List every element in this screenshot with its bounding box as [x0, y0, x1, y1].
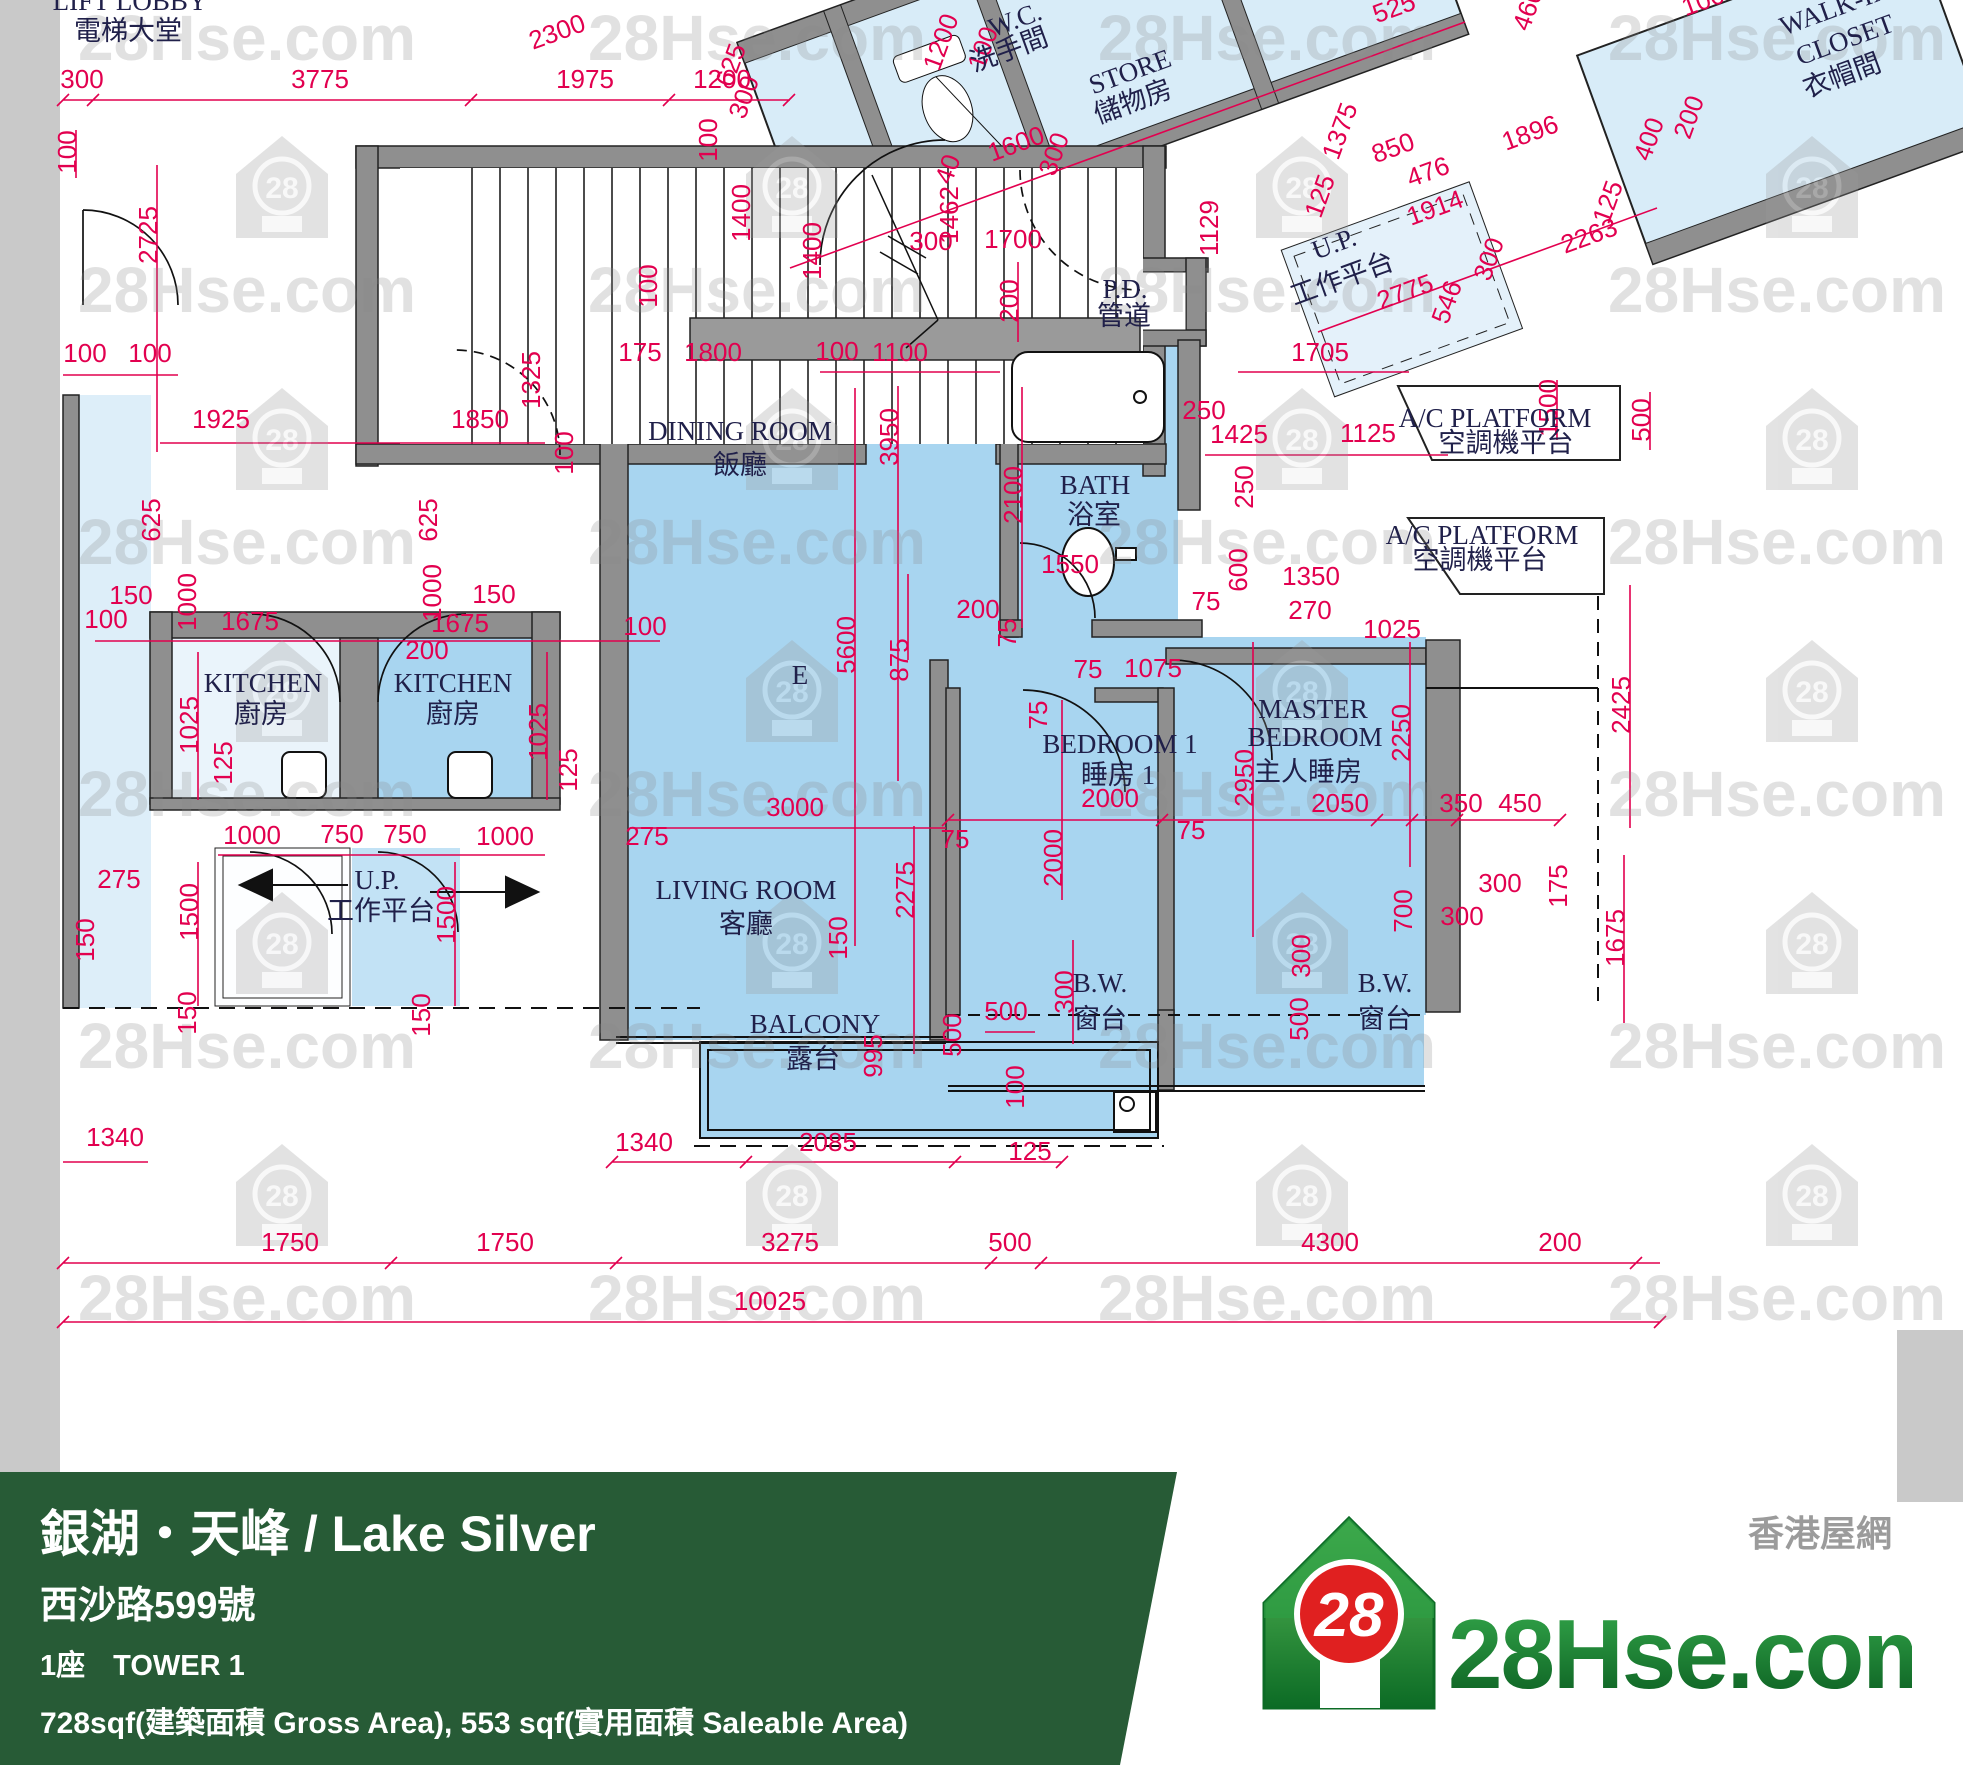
dimension-label: 1850 — [451, 404, 509, 434]
watermark-text: 28Hse.com — [588, 2, 926, 74]
svg-text:28: 28 — [265, 1180, 298, 1213]
dimension-label: 350 — [1439, 788, 1482, 818]
dimension-label: 275 — [625, 821, 668, 851]
dimension-label: 500 — [984, 996, 1027, 1026]
dimension-label: 995 — [858, 1034, 888, 1077]
watermark-text: 28Hse.com — [78, 1262, 416, 1334]
dimension-label: 175 — [1543, 864, 1573, 907]
room-label: B.W. — [1358, 968, 1413, 998]
dimension-label: 150 — [172, 991, 202, 1034]
dimension-label: 3000 — [766, 792, 824, 822]
dimension-label: 150 — [406, 993, 436, 1036]
dimension-label: 1350 — [1282, 561, 1340, 591]
room-label: BEDROOM 1 — [1042, 729, 1197, 759]
site-logo: 香港屋網 28 28Hse.com — [1252, 1498, 1912, 1728]
dimension-label: 1705 — [1291, 337, 1349, 367]
dimension-label: 300 — [1440, 901, 1483, 931]
dimension-label: 75 — [992, 619, 1022, 648]
watermark-text: 28Hse.com — [1098, 1262, 1436, 1334]
dimension-label: 1675 — [431, 608, 489, 638]
room-label: 客廳 — [719, 909, 773, 939]
dimension-label: 1129 — [1194, 200, 1224, 256]
room-label: 廚房 — [426, 699, 480, 729]
room-label: 主人睡房 — [1254, 757, 1362, 787]
dimension-label: 1925 — [192, 404, 250, 434]
dimension-label: 625 — [413, 498, 443, 541]
area-info: 728sqf(建築面積 Gross Area), 553 sqf(實用面積 Sa… — [40, 1698, 908, 1742]
svg-text:28: 28 — [265, 424, 298, 457]
dimension-label: 275 — [97, 864, 140, 894]
estate-title: 銀湖‧天峰 / Lake Silver — [40, 1494, 596, 1566]
dimension-label: 500 — [988, 1227, 1031, 1257]
room-label: 窗台 — [1358, 1004, 1412, 1034]
dimension-label: 625 — [136, 498, 166, 541]
dimension-label: 270 — [1288, 595, 1331, 625]
right-grey-margin — [1897, 1330, 1963, 1502]
dimension-label: 1500 — [174, 883, 204, 941]
dimension-label: 100 — [693, 118, 723, 161]
dimension-label: 1750 — [476, 1227, 534, 1257]
dimension-label: 75 — [1074, 654, 1103, 684]
svg-text:28: 28 — [1795, 424, 1828, 457]
room-label: 工作平台 — [327, 896, 435, 926]
logo-site-text: 28Hse.com — [1448, 1599, 1912, 1709]
watermark-text: 28Hse.com — [1608, 758, 1946, 830]
dimension-label: 1075 — [1124, 653, 1182, 683]
watermark-text: 28Hse.com — [1608, 254, 1946, 326]
logo-house-icon: 28 — [1264, 1518, 1434, 1708]
dimension-label: 1325 — [516, 351, 546, 409]
room-label: 空調機平台 — [1439, 428, 1574, 458]
watermark-text: 28Hse.com — [588, 506, 926, 578]
dimension-label: 250 — [1229, 465, 1259, 508]
watermark-text: 28Hse.com — [78, 1010, 416, 1082]
room-label: KITCHEN — [394, 668, 512, 698]
room-label: 管道 — [1097, 301, 1151, 331]
dimension-label: 300 — [909, 226, 952, 256]
dimension-label: 1340 — [615, 1127, 673, 1157]
room-label: BEDROOM — [1247, 722, 1382, 752]
dimension-label: 1000 — [172, 573, 202, 631]
dimension-label: 3275 — [761, 1227, 819, 1257]
dimension-label: 100 — [1000, 1065, 1030, 1108]
dimension-label: 200 — [405, 635, 448, 665]
room-label: BATH — [1060, 470, 1131, 500]
room-label: E — [792, 660, 809, 690]
room-label: 浴室 — [1067, 500, 1121, 530]
left-grey-margin — [0, 0, 60, 1472]
dimension-label: 10025 — [734, 1286, 806, 1316]
room-label: 飯廳 — [713, 450, 767, 480]
dimension-label: 5600 — [831, 616, 861, 674]
dimension-label: 1025 — [174, 696, 204, 754]
dimension-label: 250 — [1182, 395, 1225, 425]
dimension-label: 75 — [1023, 701, 1053, 730]
dimension-label: 1500 — [431, 886, 461, 944]
dimension-label: 500 — [1284, 997, 1314, 1040]
dimension-label: 100 — [633, 264, 663, 307]
dimension-label: 75 — [1177, 815, 1206, 845]
dimension-label: 2050 — [1311, 788, 1369, 818]
svg-text:28: 28 — [775, 1180, 808, 1213]
room-label: MASTER — [1258, 694, 1368, 724]
dimension-label: 1550 — [1041, 549, 1099, 579]
dimension-label: 200 — [1538, 1227, 1581, 1257]
dimension-label: 150 — [70, 918, 100, 961]
dimension-label: 200 — [994, 279, 1024, 322]
dimension-label: 875 — [884, 638, 914, 681]
dimension-label: 100 — [549, 431, 579, 474]
dimension-label: 100 — [815, 336, 858, 366]
svg-text:28: 28 — [1795, 676, 1828, 709]
dimension-label: 175 — [618, 337, 661, 367]
dimension-label: 150 — [472, 579, 515, 609]
watermark-text: 28Hse.com — [1608, 1262, 1946, 1334]
svg-text:28: 28 — [775, 172, 808, 205]
dimension-label: 1000 — [476, 821, 534, 851]
room-label: 睡房 1 — [1081, 760, 1155, 790]
watermark-text: 28Hse.com — [1608, 506, 1946, 578]
dimension-label: 2100 — [998, 466, 1028, 524]
watermark-text: 28Hse.com — [1608, 1010, 1946, 1082]
dimension-label: 750 — [383, 819, 426, 849]
bathtub-drain — [1134, 391, 1146, 403]
svg-text:28: 28 — [1285, 1180, 1318, 1213]
room-label: U.P. — [354, 865, 399, 895]
dimension-label: 100 — [52, 130, 82, 173]
dimension-label: 125 — [553, 748, 583, 791]
dimension-label: 1100 — [872, 337, 928, 367]
floorplan-page: 28Hse.com28Hse.com28Hse.com28Hse.com28Hs… — [0, 0, 1963, 1765]
dimension-label: 2275 — [890, 861, 920, 919]
room-label: 廚房 — [234, 699, 288, 729]
room-label: BALCONY — [750, 1009, 881, 1039]
watermark-text: 28Hse.com — [78, 506, 416, 578]
dimension-label: 300 — [1286, 934, 1316, 977]
dimension-label: 125 — [208, 741, 238, 784]
dimension-label: 1700 — [984, 224, 1042, 254]
dimension-label: 2085 — [799, 1127, 857, 1157]
tower-zh: 1座 — [40, 1650, 85, 1682]
svg-text:28: 28 — [1285, 424, 1318, 457]
logo-number: 28 — [1314, 1581, 1384, 1650]
dimension-label: 1125 — [1340, 418, 1396, 448]
dimension-label: 1340 — [86, 1122, 144, 1152]
washer-door — [1120, 1097, 1134, 1111]
dimension-label: 300 — [1478, 868, 1521, 898]
room-label: DINING ROOM — [648, 416, 832, 446]
estate-address: 西沙路599號 — [40, 1574, 255, 1629]
kitchen-sink-right — [448, 752, 492, 798]
dimension-label: 1750 — [261, 1227, 319, 1257]
dimension-label: 1675 — [221, 606, 279, 636]
dimension-label: 150 — [823, 916, 853, 959]
dimension-label: 300 — [60, 64, 103, 94]
dimension-label: 2425 — [1606, 676, 1636, 734]
room-label: 露台 — [786, 1044, 840, 1074]
svg-text:28: 28 — [1795, 172, 1828, 205]
room-label: LIVING ROOM — [656, 875, 837, 905]
room-label: P.D. — [1102, 274, 1147, 304]
dimension-label: 1025 — [523, 703, 553, 761]
dimension-label: 1675 — [1600, 909, 1630, 967]
dimension-label: 1400 — [726, 184, 756, 242]
dimension-label: 700 — [1388, 889, 1418, 932]
dimension-label: 100 — [128, 338, 171, 368]
watermark-text: 28Hse.com — [78, 254, 416, 326]
svg-text:28: 28 — [1795, 928, 1828, 961]
dimension-label: 1400 — [797, 222, 827, 280]
dimension-label: 500 — [1626, 398, 1656, 441]
dimension-label: 100 — [84, 604, 127, 634]
dimension-label: 1025 — [1363, 614, 1421, 644]
dimension-label: 2250 — [1386, 704, 1416, 762]
svg-text:28: 28 — [265, 172, 298, 205]
dimension-label: 2725 — [133, 206, 163, 264]
room-label: 空調機平台 — [1413, 545, 1548, 575]
dimension-label: 1800 — [684, 337, 742, 367]
room-label: LIFT LOBBY — [53, 0, 208, 16]
dimension-label: 3950 — [874, 408, 904, 466]
dimension-label: 3775 — [291, 64, 349, 94]
dimension-label: 2000 — [1038, 829, 1068, 887]
dimension-label: 75 — [1192, 586, 1221, 616]
room-label: KITCHEN — [204, 668, 322, 698]
dimension-label: 75 — [941, 824, 970, 854]
dimension-label: 1975 — [556, 64, 614, 94]
dimension-label: 125 — [1008, 1136, 1051, 1166]
logo-tagline: 香港屋網 — [1748, 1513, 1892, 1554]
tower-en: TOWER 1 — [113, 1650, 245, 1682]
svg-text:28: 28 — [775, 928, 808, 961]
dimension-label: 500 — [937, 1013, 967, 1056]
tower-label: 1座TOWER 1 — [40, 1642, 245, 1684]
room-label: 電梯大堂 — [74, 16, 182, 46]
dimension-label: 1000 — [223, 820, 281, 850]
watermark-text: 28Hse.com — [588, 758, 926, 830]
dimension-label: 4300 — [1301, 1227, 1359, 1257]
dimension-label: 750 — [320, 819, 363, 849]
svg-text:28: 28 — [1795, 1180, 1828, 1213]
dimension-label: 450 — [1498, 788, 1541, 818]
room-label: 窗台 — [1073, 1004, 1127, 1034]
room-label: B.W. — [1073, 968, 1128, 998]
svg-text:28: 28 — [265, 928, 298, 961]
dimension-label: 100 — [623, 611, 666, 641]
dimension-label: 100 — [63, 338, 106, 368]
dimension-label: 600 — [1223, 548, 1253, 591]
